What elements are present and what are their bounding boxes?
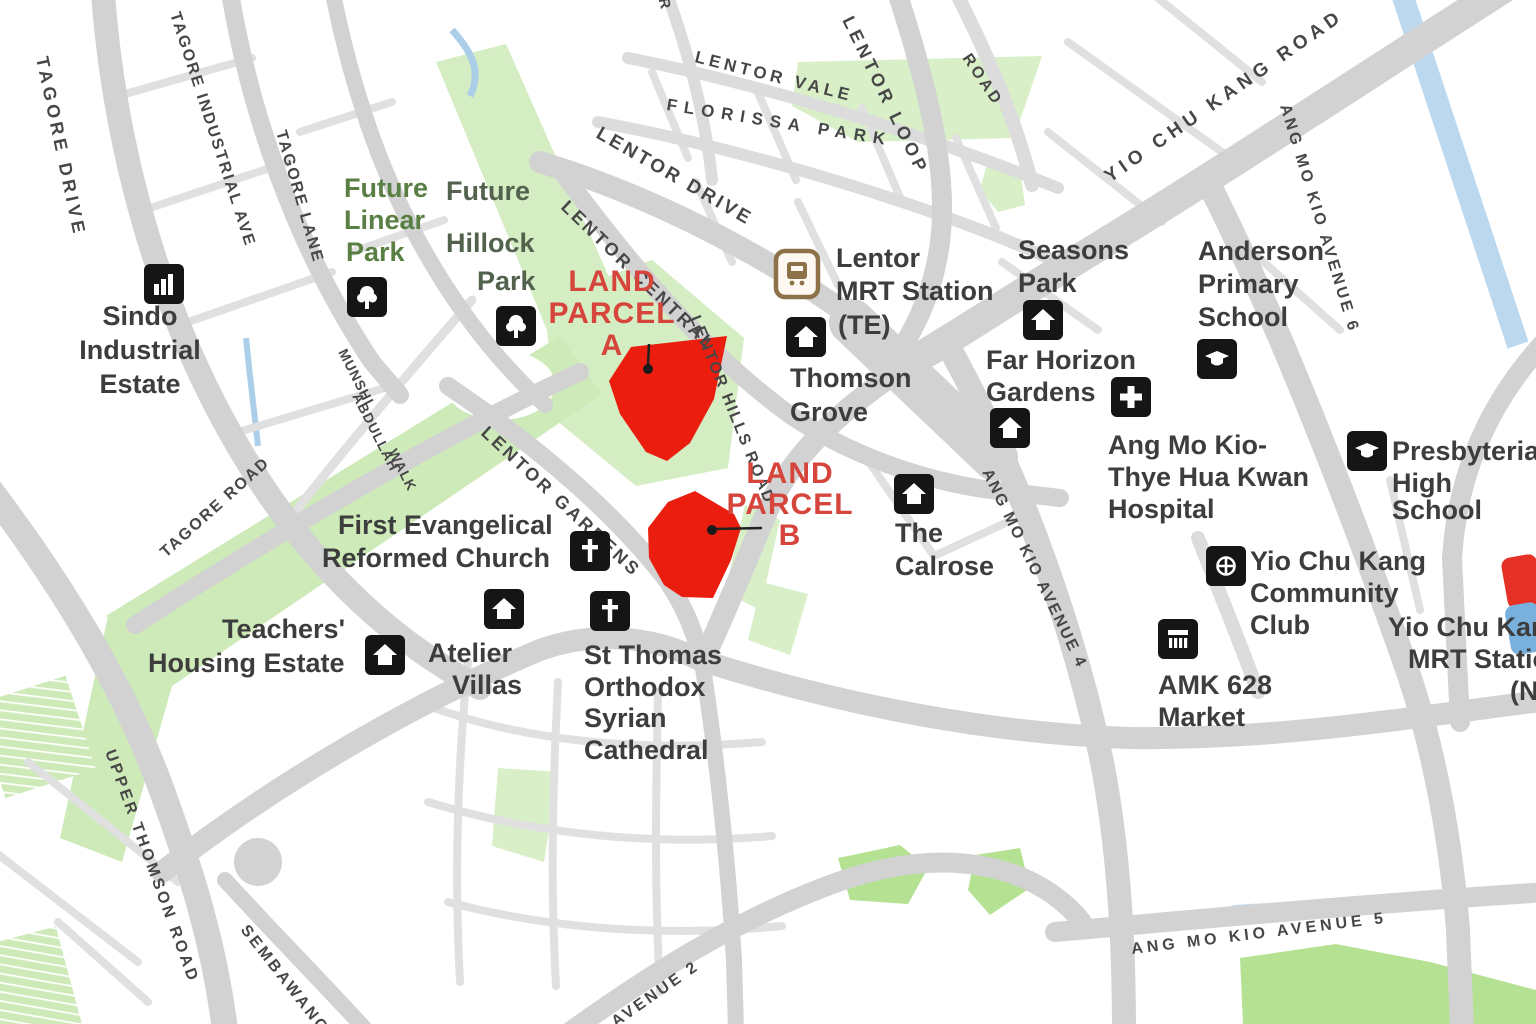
church-icon: [590, 591, 630, 631]
house-icon: [990, 408, 1030, 448]
place-label-line: Park: [1018, 268, 1078, 298]
place-label-line: PARCEL: [548, 297, 675, 330]
place-label-line: Thomson: [790, 363, 912, 393]
minor-road: [188, 272, 332, 322]
place-label-line: Gardens: [986, 377, 1096, 407]
parcel-a-dot: [643, 364, 653, 374]
lentor-map-svg: TAGORE DRIVE TAGORE INDUSTRIAL AVE TAGOR…: [0, 0, 1536, 1024]
junction-bulge: [234, 838, 282, 886]
place-label-line: Future: [446, 176, 530, 206]
place-label-line: Community: [1250, 578, 1399, 608]
place-label-line: MRT Station: [1408, 644, 1536, 674]
place-label-line: A: [601, 329, 624, 362]
place-label-line: Seasons: [1018, 235, 1129, 265]
place-label-line: Future: [344, 173, 428, 203]
place-label-line: Lentor: [836, 243, 920, 273]
place-label-line: Park: [477, 266, 537, 296]
place-label-line: Grove: [790, 397, 868, 427]
place-label-line: Atelier: [428, 638, 513, 668]
house-icon: [894, 474, 934, 514]
place-label-line: St Thomas: [584, 640, 722, 670]
place-label-line: Park: [346, 237, 406, 267]
place-label-line: Club: [1250, 610, 1310, 640]
place-label-future-hillock-park: Future Hillock Park: [446, 176, 537, 296]
road-label-amk-ave-6: ANG MO KIO AVENUE 6: [1276, 102, 1362, 335]
community-club-icon: [1206, 546, 1246, 586]
place-label-anderson: Anderson Primary School: [1198, 236, 1324, 332]
place-label-line: Thye Hua Kwan: [1108, 462, 1309, 492]
place-label-line: Orthodox: [584, 672, 706, 702]
place-label-line: LAND: [746, 457, 833, 490]
place-label-line: The: [895, 518, 943, 548]
place-label-line: AMK 628: [1158, 670, 1272, 700]
map-canvas: TAGORE DRIVE TAGORE INDUSTRIAL AVE TAGOR…: [0, 0, 1536, 1024]
mrt-station-icon: [776, 251, 818, 297]
hospital-icon: [1111, 377, 1151, 417]
place-label-line: B: [779, 519, 802, 552]
tree-icon: [347, 277, 387, 317]
place-label-line: Yio Chu Kang: [1250, 546, 1426, 576]
place-label-line: (TE): [838, 310, 890, 340]
place-label-line: Hillock: [446, 228, 536, 258]
parcel-b-dot: [707, 525, 717, 535]
place-label-line: Housing Estate: [148, 648, 345, 678]
place-label-line: PARCEL: [726, 488, 853, 521]
minor-road: [457, 662, 468, 982]
green-bright-bottom-right: [1240, 944, 1536, 1024]
place-label-line: Sindo: [103, 301, 178, 331]
place-label-line: Industrial: [79, 335, 201, 365]
place-label-line: LAND: [568, 265, 655, 298]
place-label-line: First Evangelical: [338, 510, 553, 540]
place-label-line: (N: [1510, 676, 1536, 706]
place-label-line: Syrian: [584, 703, 667, 733]
place-label-line: Reformed Church: [322, 543, 550, 573]
market-icon: [1158, 619, 1198, 659]
industrial-icon: [144, 264, 184, 304]
place-label-line: Primary: [1198, 269, 1299, 299]
tree-icon: [496, 306, 536, 346]
parcel-b-pointer-line: [716, 528, 762, 529]
school-icon: [1347, 431, 1387, 471]
place-label-line: Cathedral: [584, 735, 709, 765]
green-patch-estate: [492, 768, 558, 862]
place-label-line: Market: [1158, 702, 1245, 732]
place-label-line: Calrose: [895, 551, 994, 581]
place-label-line: School: [1392, 495, 1482, 525]
minor-road: [300, 102, 392, 132]
place-label-line: Linear: [344, 205, 426, 235]
place-label-line: Ang Mo Kio-: [1108, 430, 1267, 460]
parcel-a-pointer-line: [648, 344, 649, 366]
place-label-amk628: AMK 628 Market: [1158, 670, 1272, 732]
place-label-line: High: [1392, 468, 1452, 498]
house-icon: [786, 317, 826, 357]
place-label-line: Far Horizon: [986, 345, 1136, 375]
place-label-line: Anderson: [1198, 236, 1324, 266]
place-label-line: Hospital: [1108, 494, 1215, 524]
place-label-line: MRT Station: [836, 276, 993, 306]
place-label-future-linear-park: Future Linear Park: [344, 173, 428, 267]
house-icon: [1023, 300, 1063, 340]
place-label-line: Villas: [452, 670, 522, 700]
place-label-line: Presbyterian: [1392, 436, 1536, 466]
place-label-line: Estate: [99, 369, 180, 399]
road-label-tagore-drive: TAGORE DRIVE: [32, 55, 90, 239]
place-label-line: Teachers': [222, 614, 345, 644]
place-label-line: School: [1198, 302, 1288, 332]
place-label-hospital: Ang Mo Kio- Thye Hua Kwan Hospital: [1108, 430, 1309, 524]
place-label-line: Yio Chu Kang: [1388, 612, 1536, 642]
hatched-green-left-lower: [0, 926, 82, 1024]
church-icon: [570, 531, 610, 571]
house-icon: [365, 635, 405, 675]
school-icon: [1197, 339, 1237, 379]
minor-road: [1068, 42, 1222, 152]
house-icon: [484, 589, 524, 629]
